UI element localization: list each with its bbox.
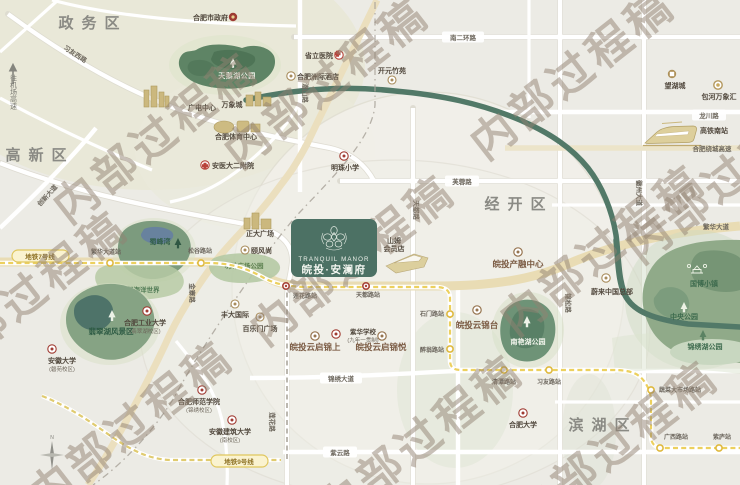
svg-text:锦绣湖公园: 锦绣湖公园: [688, 342, 723, 351]
svg-text:习友路站: 习友路站: [537, 378, 561, 386]
svg-text:安徽大学: 安徽大学: [48, 356, 76, 365]
svg-text:颐风尚: 颐风尚: [251, 246, 272, 255]
svg-text:天都路站: 天都路站: [356, 291, 380, 299]
svg-text:皖投产融中心: 皖投产融中心: [492, 259, 544, 269]
svg-text:龙川路: 龙川路: [698, 111, 719, 120]
svg-text:安徽建筑大学: 安徽建筑大学: [209, 427, 251, 436]
svg-text:翡翠湖风景区: 翡翠湖风景区: [89, 326, 134, 336]
svg-text:合肥市政府: 合肥市政府: [192, 13, 228, 22]
svg-text:芙蓉路: 芙蓉路: [452, 177, 472, 186]
svg-text:紫华学校: 紫华学校: [350, 327, 377, 336]
svg-text:政务区: 政务区: [58, 14, 127, 32]
svg-text:明珠小学: 明珠小学: [331, 163, 359, 172]
svg-text:醉翁路站: 醉翁路站: [420, 346, 444, 354]
svg-text:往机场高速: 往机场高速: [10, 74, 18, 111]
svg-text:皖投云锦台: 皖投云锦台: [456, 320, 499, 330]
svg-text:紫云路: 紫云路: [330, 448, 350, 457]
svg-text:金寨路: 金寨路: [188, 282, 197, 303]
svg-text:合肥工业大学: 合肥工业大学: [123, 318, 166, 327]
svg-text:蔚来中国总部: 蔚来中国总部: [591, 287, 633, 296]
svg-text:地铁9号线: 地铁9号线: [224, 457, 254, 466]
svg-text:中央公园: 中央公园: [670, 312, 698, 321]
svg-text:南二环路: 南二环路: [450, 33, 477, 42]
svg-text:正大广场: 正大广场: [246, 229, 274, 238]
svg-text:蜀峰湾: 蜀峰湾: [150, 237, 171, 246]
svg-text:望湖城: 望湖城: [665, 81, 686, 90]
svg-text:松谷路站: 松谷路站: [188, 247, 212, 255]
svg-text:(翡翠湖校区): (翡翠湖校区): [129, 327, 160, 335]
svg-text:N: N: [50, 435, 54, 441]
svg-text:莲花路: 莲花路: [268, 412, 277, 432]
svg-text:石门路站: 石门路站: [419, 310, 444, 318]
svg-text:包河万象汇: 包河万象汇: [702, 92, 737, 101]
svg-text:紫庐站: 紫庐站: [713, 433, 731, 441]
svg-text:经开区: 经开区: [484, 195, 553, 213]
svg-text:皖投·安澜府: 皖投·安澜府: [302, 263, 367, 276]
svg-text:TRANQUIL MANOR: TRANQUIL MANOR: [298, 256, 369, 263]
svg-text:国博小镇: 国博小镇: [690, 279, 718, 288]
svg-text:合肥大学: 合肥大学: [508, 420, 537, 429]
svg-text:高铁南站: 高铁南站: [700, 126, 728, 135]
svg-text:锦绣大道: 锦绣大道: [328, 374, 355, 383]
svg-text:皖投云启锦悦: 皖投云启锦悦: [355, 342, 407, 352]
svg-text:高新区: 高新区: [5, 146, 74, 164]
svg-text:(南校区): (南校区): [220, 436, 240, 444]
svg-text:皖投云启锦上: 皖投云启锦上: [289, 342, 341, 352]
svg-text:(磬苑校区): (磬苑校区): [49, 365, 75, 373]
